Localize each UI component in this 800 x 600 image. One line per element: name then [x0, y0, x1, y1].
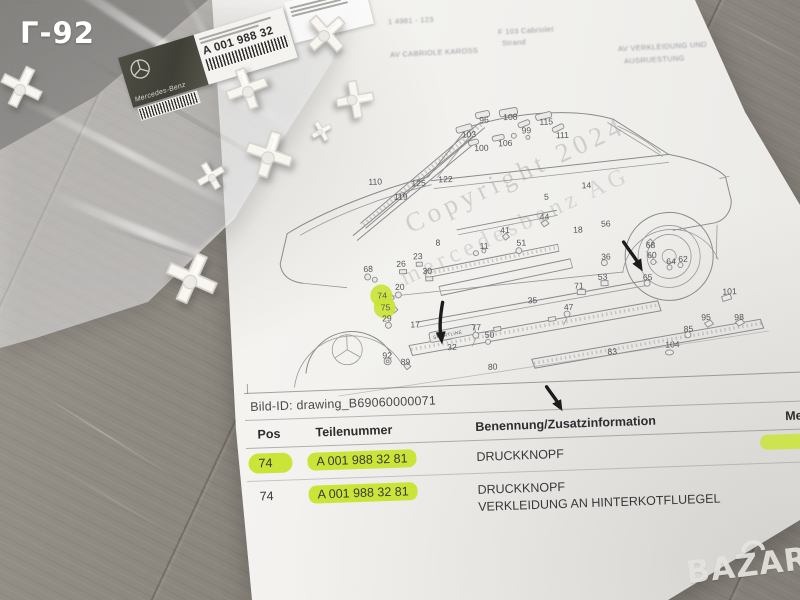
part-position-label: 125 [411, 178, 426, 189]
header-benennung: Benennung/Zusatzinformation [475, 409, 785, 434]
part-position-label: 110 [368, 176, 382, 186]
page-header-center-2: Strand [502, 37, 526, 48]
part-position-label: 17 [410, 319, 420, 329]
part-position-label: 68 [363, 264, 373, 274]
part-position-label: 23 [413, 251, 423, 261]
part-position-label: 101 [722, 286, 737, 297]
paper-wrap: 1 4981 - 123 AV CABRIOLE KAROSS F 103 Ca… [0, 0, 800, 600]
part-position-label: 53 [598, 272, 608, 282]
part-name: DRUCKKNOPF [476, 438, 786, 466]
part-position-label: 41 [500, 225, 510, 235]
part-position-label: 5 [544, 192, 549, 202]
part-number-value: A 001 988 32 81 [308, 482, 418, 504]
part-position-label: 74 [377, 290, 387, 300]
quantity-highlight [760, 433, 800, 450]
part-position-label: 122 [438, 174, 453, 185]
part-position-label: 95 [701, 312, 711, 322]
part-position-label: 89 [400, 357, 410, 367]
part-position-label: 8 [435, 237, 440, 247]
car-body-drawing: SPORTLINE [275, 99, 771, 421]
page-header-right-1: AV VERKLEIDUNG UND [618, 40, 707, 55]
part-position-label: 115 [539, 116, 553, 126]
part-position-label: 108 [503, 112, 518, 123]
part-position-label: 85 [684, 324, 694, 334]
bag-handle-icon [739, 535, 767, 554]
part-position-label: 104 [665, 339, 680, 350]
pos-value: 74 [248, 452, 293, 474]
part-position-label: 44 [540, 212, 550, 222]
part-position-label: 119 [394, 192, 408, 202]
part-position-label: 96 [479, 115, 489, 125]
mercedes-star-icon [126, 55, 153, 82]
page-header-right-2: AUSRUESTUNG [624, 53, 685, 66]
part-position-label: 56 [601, 218, 611, 228]
page-header-center-1: F 103 Cabriolet [498, 25, 554, 38]
part-position-label: 92 [382, 350, 392, 360]
page-header-left-2: AV CABRIOLE KAROSS [390, 46, 479, 61]
part-position-label: 111 [556, 130, 570, 140]
part-position-label: 68 [646, 240, 656, 250]
part-position-label: 14 [581, 180, 591, 190]
header-menge: Me [785, 408, 800, 423]
part-position-label: 77 [471, 322, 481, 332]
part-position-label: 47 [564, 302, 574, 312]
part-position-label: 75 [381, 302, 391, 312]
header-pos: Pos [257, 426, 315, 442]
part-position-label: 80 [488, 361, 498, 371]
part-position-label: 103 [462, 129, 477, 140]
part-position-label: 83 [607, 346, 617, 356]
part-position-label: 30 [422, 266, 432, 276]
header-teilenummer: Teilenummer [315, 420, 475, 440]
part-position-label: 64 [666, 256, 676, 266]
part-position-label: 65 [643, 272, 653, 282]
page-header-left-1: 1 4981 - 123 [388, 15, 434, 27]
part-position-label: 20 [395, 282, 405, 292]
part-position-label: 50 [485, 330, 495, 340]
bild-id-label: Bild-ID: [250, 399, 293, 414]
part-position-label: 106 [498, 138, 513, 149]
part-position-label: 32 [447, 342, 457, 352]
corner-tag: Г-92 [20, 16, 95, 50]
part-position-label: 18 [573, 224, 583, 234]
part-position-label: 26 [396, 259, 406, 269]
part-position-label: 71 [574, 280, 584, 290]
part-position-label: 60 [647, 250, 657, 260]
sportline-badge: SPORTLINE [429, 324, 476, 343]
part-number-value: A 001 988 32 81 [307, 449, 417, 471]
parts-table: Pos Teilenummer Benennung/Zusatzinformat… [245, 400, 800, 531]
part-position-label: 100 [474, 143, 489, 154]
part-position-label: 99 [521, 125, 531, 135]
part-position-label: 36 [601, 251, 611, 261]
part-position-label: 35 [527, 295, 537, 305]
part-position-label: 51 [516, 237, 526, 247]
part-position-label: 62 [678, 254, 688, 264]
part-position-label: 98 [734, 312, 744, 322]
part-position-label: 11 [479, 241, 488, 251]
parts-catalog-page: 1 4981 - 123 AV CABRIOLE KAROSS F 103 Ca… [0, 0, 800, 600]
part-position-label: 29 [382, 313, 392, 323]
pos-value: 74 [259, 489, 273, 503]
